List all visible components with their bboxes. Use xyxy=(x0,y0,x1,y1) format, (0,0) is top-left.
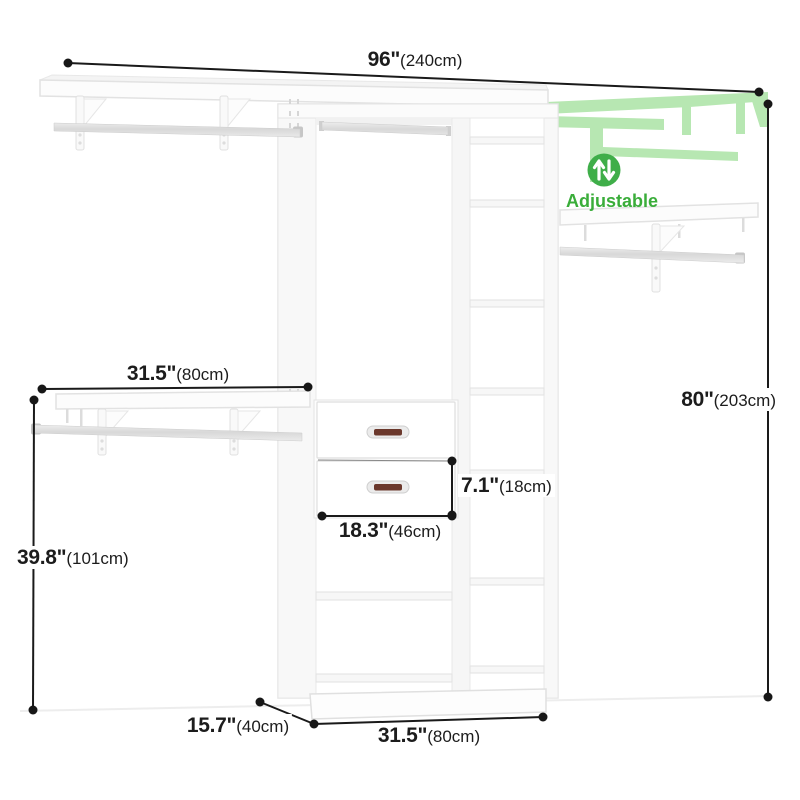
base-plinth xyxy=(310,689,546,719)
center-tower xyxy=(278,99,558,719)
adjustable-arrows-icon xyxy=(588,154,621,187)
upper-left-shelf-rod xyxy=(54,96,303,150)
closet-illustration xyxy=(0,0,800,800)
dim-line-left-rod-width xyxy=(42,387,308,389)
hanging-compartment xyxy=(316,118,452,400)
right-shelf-rod xyxy=(560,203,758,292)
drawer-stack xyxy=(314,400,458,518)
dim-line-left-rod-height xyxy=(33,400,34,710)
lower-left-cubbies xyxy=(316,518,452,698)
drawer-handle xyxy=(367,426,409,438)
product-dimension-diagram: 96"(240cm) 80"(203cm) 31.5"(80cm) 39.8"(… xyxy=(0,0,800,800)
lower-left-shelf-rod xyxy=(31,391,310,455)
drawer-handle xyxy=(367,481,409,493)
right-cubby-column xyxy=(470,118,544,698)
adjustable-ghost-shelf xyxy=(546,92,768,182)
